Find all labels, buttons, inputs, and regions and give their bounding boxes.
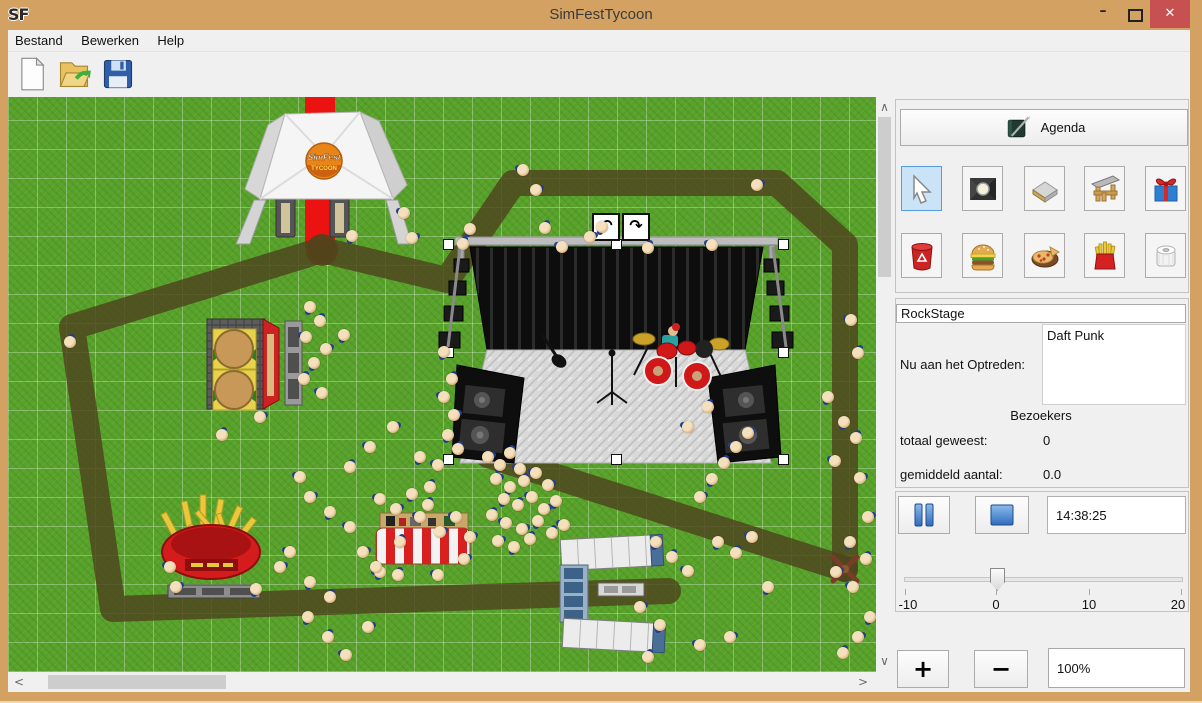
visitor [596, 221, 608, 233]
menu-bewerken[interactable]: Bewerken [74, 30, 146, 48]
horizontal-scrollbar[interactable]: < > [8, 672, 876, 692]
stage-info-group: Daft Punk Nu aan het Optreden: Bezoekers… [895, 298, 1189, 488]
selection-handle[interactable] [443, 454, 454, 465]
visitor [508, 541, 520, 553]
tool-toilet-button[interactable] [1145, 233, 1186, 278]
visitor [642, 242, 654, 254]
new-file-button[interactable] [14, 56, 50, 92]
tent-logo-subtext: TYCOON [311, 166, 337, 172]
visitor [170, 581, 182, 593]
visitor [284, 546, 296, 558]
open-file-button[interactable] [56, 56, 92, 92]
rock-stage[interactable] [439, 237, 793, 463]
tool-burger-button[interactable] [962, 233, 1003, 278]
save-button[interactable] [100, 56, 136, 92]
visitor [346, 230, 358, 242]
visitor [852, 347, 864, 359]
visitor [532, 515, 544, 527]
visitor [457, 238, 469, 250]
visitor [406, 488, 418, 500]
visitor [517, 164, 529, 176]
visitor [422, 499, 434, 511]
visitor [438, 391, 450, 403]
visitor [370, 561, 382, 573]
visitor [458, 553, 470, 565]
visitor [274, 561, 286, 573]
speed-slider-thumb[interactable] [990, 568, 1005, 591]
visitor [357, 546, 369, 558]
tick-10: 10 [1082, 597, 1096, 612]
selection-handle[interactable] [611, 454, 622, 465]
window-border-right [1190, 30, 1202, 701]
visitor [694, 491, 706, 503]
scroll-up-arrow[interactable]: ∧ [876, 99, 893, 115]
window-border-left [0, 30, 8, 701]
visitor [308, 357, 320, 369]
tent-logo-text: SimFest [307, 152, 341, 162]
scroll-right-arrow[interactable]: > [856, 674, 870, 690]
vertical-scroll-thumb[interactable] [878, 117, 891, 277]
visitor [314, 315, 326, 327]
stop-button[interactable] [975, 496, 1029, 534]
visitor [302, 611, 314, 623]
fries-icon [1089, 240, 1121, 272]
scroll-down-arrow[interactable]: ∨ [876, 653, 893, 669]
visitor [634, 601, 646, 613]
visitor [254, 411, 266, 423]
visitor [584, 231, 596, 243]
visitor [822, 391, 834, 403]
festival-map-canvas[interactable]: SimFest TYCOON [8, 97, 876, 672]
menu-bestand[interactable]: Bestand [8, 30, 70, 48]
visitor [414, 511, 426, 523]
visitor [387, 421, 399, 433]
visitors-avg-value: 0.0 [1043, 467, 1061, 482]
visitor [558, 519, 570, 531]
visitor [300, 331, 312, 343]
visitor [538, 503, 550, 515]
control-panel: Agenda [893, 97, 1190, 692]
selection-handle[interactable] [443, 239, 454, 250]
maximize-button[interactable] [1120, 0, 1150, 28]
visitor [556, 241, 568, 253]
pause-button[interactable] [898, 496, 950, 534]
visitor [518, 475, 530, 487]
zoom-level-field[interactable]: 100% [1048, 648, 1185, 688]
visitor [464, 531, 476, 543]
visitor [742, 427, 754, 439]
visitor [730, 441, 742, 453]
visitor [414, 451, 426, 463]
visitor [344, 461, 356, 473]
visitor [486, 509, 498, 521]
visitor [434, 526, 446, 538]
tools-group: Agenda [895, 99, 1189, 293]
visitor [450, 511, 462, 523]
visitor [512, 499, 524, 511]
stage-structure-icon [1089, 173, 1121, 205]
burger-stand[interactable] [207, 319, 279, 410]
zoom-out-button[interactable]: − [974, 650, 1028, 688]
visitor [642, 651, 654, 663]
now-performing-box: Daft Punk [1042, 324, 1186, 405]
now-performing-label: Nu aan het Optreden: [900, 357, 1025, 372]
bench[interactable] [598, 583, 644, 596]
visitor [829, 455, 841, 467]
visitor [392, 569, 404, 581]
visitor [730, 547, 742, 559]
path-tile-icon [1029, 173, 1061, 205]
visitor [862, 511, 874, 523]
tool-trash-button[interactable] [901, 233, 942, 278]
zoom-in-button[interactable]: + [897, 650, 949, 688]
visitors-total-value: 0 [1043, 433, 1050, 448]
visitor [438, 346, 450, 358]
visitors-total-label: totaal geweest: [900, 433, 987, 448]
visitor [854, 472, 866, 484]
visitor [844, 536, 856, 548]
tick-0: 0 [992, 597, 999, 612]
visitor [164, 561, 176, 573]
visitor [654, 619, 666, 631]
visitor [324, 591, 336, 603]
visitor [860, 553, 872, 565]
visitor [762, 581, 774, 593]
visitor [706, 239, 718, 251]
visitor [340, 649, 352, 661]
time-display: 14:38:25 [1047, 496, 1186, 534]
tool-spotlight-button[interactable] [962, 166, 1003, 211]
visitor [498, 493, 510, 505]
speed-slider-track[interactable] [904, 577, 1183, 582]
visitor [706, 473, 718, 485]
tool-select-button[interactable] [901, 166, 942, 211]
agenda-book-icon [1003, 114, 1031, 142]
window-title: SimFestTycoon [0, 6, 1202, 23]
visitor [394, 536, 406, 548]
visitor [550, 495, 562, 507]
tick-20: 20 [1171, 597, 1185, 612]
visitor [442, 429, 454, 441]
burger-icon [967, 240, 999, 272]
visitor [524, 533, 536, 545]
visitor [830, 566, 842, 578]
visitor [504, 481, 516, 493]
menu-bar: Bestand Bewerken Help [8, 30, 1190, 52]
minimize-button[interactable]: – [1088, 0, 1118, 28]
visitor [500, 517, 512, 529]
visitor [452, 443, 464, 455]
close-button[interactable]: ✕ [1150, 0, 1190, 28]
stage-name-input[interactable] [896, 304, 1186, 323]
maximize-icon [1128, 9, 1143, 22]
visitor [320, 343, 332, 355]
visitor [432, 569, 444, 581]
tool-gift-button[interactable] [1145, 166, 1186, 211]
visitor [864, 611, 876, 623]
visitor [492, 535, 504, 547]
visitor [694, 639, 706, 651]
visitor [852, 631, 864, 643]
visitor [494, 459, 506, 471]
visitor [682, 421, 694, 433]
menu-help[interactable]: Help [150, 30, 191, 48]
visitor [432, 459, 444, 471]
visitor [424, 481, 436, 493]
visitors-avg-label: gemiddeld aantal: [900, 467, 1003, 482]
visitor [298, 373, 310, 385]
window-border-bottom [0, 692, 1202, 703]
visitor [406, 232, 418, 244]
horizontal-scroll-thumb[interactable] [48, 675, 226, 689]
tick-minus10: -10 [899, 597, 918, 612]
scroll-left-arrow[interactable]: < [12, 674, 26, 690]
visitor [304, 491, 316, 503]
pizza-icon [1029, 240, 1061, 272]
visitor [845, 314, 857, 326]
playback-group: 14:38:25 -10 0 10 20 [895, 491, 1189, 612]
visitor [448, 409, 460, 421]
visitor [724, 631, 736, 643]
rotate-right-button[interactable]: ↷ [622, 213, 650, 241]
visitor [847, 581, 859, 593]
visitor [398, 207, 410, 219]
stop-icon [989, 502, 1015, 528]
gift-icon [1150, 173, 1182, 205]
visitor [850, 432, 862, 444]
selection-handle[interactable] [778, 454, 789, 465]
title-bar[interactable]: SF SimFestTycoon – ✕ [0, 0, 1202, 30]
visitor [316, 387, 328, 399]
tool-path-button[interactable] [1024, 166, 1065, 211]
visitor [490, 473, 502, 485]
visitor [482, 451, 494, 463]
tool-stage-button[interactable] [1084, 166, 1125, 211]
trash-can-icon [906, 240, 938, 272]
visitor [338, 329, 350, 341]
visitor [374, 493, 386, 505]
visitor [666, 551, 678, 563]
agenda-label: Agenda [1041, 120, 1086, 135]
visitor [324, 506, 336, 518]
visitor [364, 441, 376, 453]
toilet-paper-icon [1150, 240, 1182, 272]
visitor [746, 531, 758, 543]
agenda-button[interactable]: Agenda [900, 109, 1188, 146]
pause-icon [911, 502, 937, 528]
save-file-icon [100, 56, 136, 92]
speaker-stack [708, 365, 781, 463]
visitor [64, 336, 76, 348]
visitor [304, 576, 316, 588]
tool-fries-button[interactable] [1084, 233, 1125, 278]
visitor [838, 416, 850, 428]
visitor [514, 463, 526, 475]
visitors-heading: Bezoekers [896, 408, 1186, 423]
visitor [546, 527, 558, 539]
visitor [542, 479, 554, 491]
select-cursor-icon [906, 173, 938, 205]
spotlight-icon [967, 173, 999, 205]
visitor [504, 447, 516, 459]
visitor [650, 536, 662, 548]
selection-handle[interactable] [778, 347, 789, 358]
visitor [362, 621, 374, 633]
visitor [344, 521, 356, 533]
visitor [530, 184, 542, 196]
visitor [250, 583, 262, 595]
tool-pizza-button[interactable] [1024, 233, 1065, 278]
visitor [530, 467, 542, 479]
visitor [446, 373, 458, 385]
open-file-icon [56, 56, 92, 92]
visitor [539, 222, 551, 234]
visitor [294, 471, 306, 483]
visitor [390, 503, 402, 515]
visitor [304, 301, 316, 313]
visitor [682, 565, 694, 577]
visitor [526, 491, 538, 503]
visitor [216, 429, 228, 441]
visitor [322, 631, 334, 643]
visitor [702, 401, 714, 413]
visitor [837, 647, 849, 659]
vertical-scrollbar[interactable]: ∧ ∨ [876, 97, 893, 672]
visitor [751, 179, 763, 191]
selection-handle[interactable] [778, 239, 789, 250]
new-document-icon [14, 56, 50, 92]
tool-bar [8, 52, 1190, 95]
visitor [712, 536, 724, 548]
visitor [718, 457, 730, 469]
visitor [464, 223, 476, 235]
